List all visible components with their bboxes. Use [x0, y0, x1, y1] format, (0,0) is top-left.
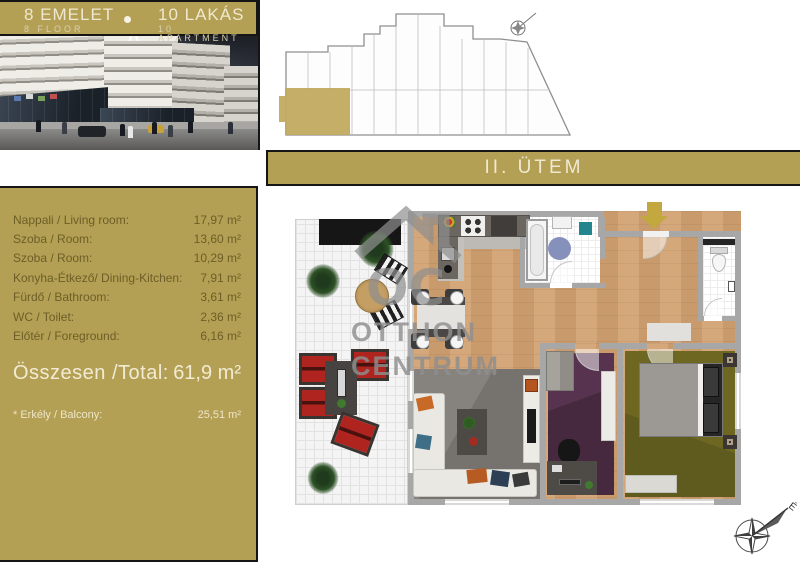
floor-count: 8 EMELET 8 FLOOR — [24, 6, 114, 34]
room-area: 10,29 m² — [194, 251, 241, 265]
bed-pillow — [703, 367, 719, 397]
watermark-logo-letters: OC — [366, 259, 445, 315]
room-label: Konyha-Étkező/ Dining-Kitchen: — [13, 271, 182, 285]
tv-screen — [527, 409, 536, 443]
plant-icon — [301, 259, 345, 303]
bathroom-sink — [552, 216, 572, 229]
watermark-line1: OTTHON — [351, 315, 477, 349]
watermark-logo-icon: OC — [350, 203, 465, 315]
compass-icon: É — [722, 496, 800, 560]
total-area: 61,9 m² — [173, 362, 241, 385]
wall-top-entrance — [598, 231, 741, 237]
desk-plant-icon — [585, 481, 593, 489]
room-label: Előtér / Foreground: — [13, 329, 120, 343]
wall-hall-bedrooms — [540, 343, 741, 349]
cushion-dark — [512, 472, 530, 488]
desk-paper — [552, 465, 562, 472]
room-area: 7,91 m² — [200, 271, 241, 285]
wc-shelf — [703, 239, 735, 245]
floor-count-hu: 8 EMELET — [24, 6, 114, 23]
toilet-tank — [710, 247, 728, 254]
lounge-table-runner — [337, 369, 346, 397]
wall-art-orange — [525, 379, 538, 392]
flag-blue — [14, 96, 21, 101]
highlighted-unit — [279, 88, 350, 135]
room-label: Szoba / Room: — [13, 232, 92, 246]
room-list-panel: Nappali / Living room: 17,97 m² Szoba / … — [0, 186, 258, 562]
flag-red — [50, 94, 57, 99]
wall-bathroom-right — [600, 217, 605, 259]
room-row: Nappali / Living room: 17,97 m² — [13, 210, 241, 229]
watermark-line2: CENTRUM — [351, 349, 500, 383]
desk-keyboard — [559, 479, 581, 485]
lounge-table-plant-icon — [337, 399, 346, 408]
bathtub-basin — [530, 224, 544, 276]
balcony-area: 25,51 m² — [198, 409, 241, 421]
bathroom-rug — [548, 237, 571, 260]
wall-right — [735, 231, 741, 505]
room-label: WC / Toilet: — [13, 310, 74, 324]
coffee-table — [457, 409, 487, 455]
room-area: 6,16 m² — [200, 329, 241, 343]
bedroom-bench — [625, 475, 677, 493]
apartment-count-en: 10 APARTMENT — [158, 25, 256, 43]
room-area: 2,36 m² — [200, 310, 241, 324]
room-label: Nappali / Living room: — [13, 213, 129, 227]
flag-green — [38, 96, 45, 101]
room-label: Fürdő / Bathroom: — [13, 290, 110, 304]
room-area: 13,60 m² — [194, 232, 241, 246]
wall-wc-left — [698, 237, 703, 321]
window-bottom-bedroom1 — [640, 499, 714, 505]
hall-doormat — [647, 323, 691, 341]
wall-bedroom2-bedroom1 — [617, 349, 623, 505]
wc-door-opening — [704, 316, 722, 321]
coffee-table-plant-icon — [463, 417, 475, 429]
cushion-blue — [415, 434, 432, 450]
nightstand — [723, 435, 737, 449]
nightstand — [723, 353, 737, 367]
office-chair — [558, 439, 580, 463]
balcony-label: * Erkély / Balcony: — [13, 409, 102, 421]
plant-icon — [303, 457, 343, 499]
phase-label: II. ÜTEM — [485, 157, 584, 179]
apartment-count-hu: 10 LAKÁS — [158, 6, 256, 23]
balcony-note-row: * Erkély / Balcony: 25,51 m² — [13, 409, 241, 421]
compass-north-label: É — [786, 499, 800, 514]
coffee-table-bowl — [469, 437, 478, 446]
bed-pillow — [703, 403, 719, 433]
flag-white — [26, 94, 33, 99]
apartment-count: 10 LAKÁS 10 APARTMENT — [158, 6, 256, 43]
cushion-navy — [490, 470, 510, 487]
window-bottom-living — [445, 499, 509, 505]
room-row: Szoba / Room: 13,60 m² — [13, 229, 241, 248]
room-row: Fürdő / Bathroom: 3,61 m² — [13, 288, 241, 307]
cushion-orange2 — [466, 468, 487, 484]
room-area: 17,97 m² — [194, 213, 241, 227]
bathroom-door-opening — [550, 283, 572, 288]
washing-machine — [579, 222, 592, 235]
room-row: WC / Toilet: 2,36 m² — [13, 307, 241, 326]
room-row: Konyha-Étkező/ Dining-Kitchen: 7,91 m² — [13, 268, 241, 287]
car-dark — [78, 126, 106, 137]
room-row: Előtér / Foreground: 6,16 m² — [13, 326, 241, 345]
wardrobe — [546, 351, 574, 391]
floor-apartment-banner: 8 EMELET 8 FLOOR 10 LAKÁS 10 APARTMENT — [0, 0, 258, 36]
total-row: Összesen /Total: 61,9 m² — [13, 362, 241, 385]
phase-banner: II. ÜTEM — [266, 150, 800, 186]
floor-count-en: 8 FLOOR — [24, 25, 114, 34]
window-right-bedroom1 — [735, 373, 741, 429]
separator-dot-icon — [124, 16, 131, 23]
total-label: Összesen /Total: — [13, 362, 169, 385]
kitchen-appliance — [491, 216, 517, 236]
room-row: Szoba / Room: 10,29 m² — [13, 249, 241, 268]
closet-white — [601, 371, 616, 441]
site-plan-overview — [268, 4, 588, 148]
apartment-floorplan: OC OTTHON CENTRUM — [295, 203, 745, 505]
room-label: Szoba / Room: — [13, 251, 92, 265]
entrance-arrow-head-icon — [640, 216, 668, 229]
floorplan-sheet: Λ 8 EMELET 8 FLOOR 10 LAKÁ — [0, 0, 800, 562]
room-area: 3,61 m² — [200, 290, 241, 304]
wc-wall-frame — [728, 281, 735, 292]
mini-compass-icon — [511, 13, 536, 35]
entrance-arrow-icon — [647, 202, 662, 216]
